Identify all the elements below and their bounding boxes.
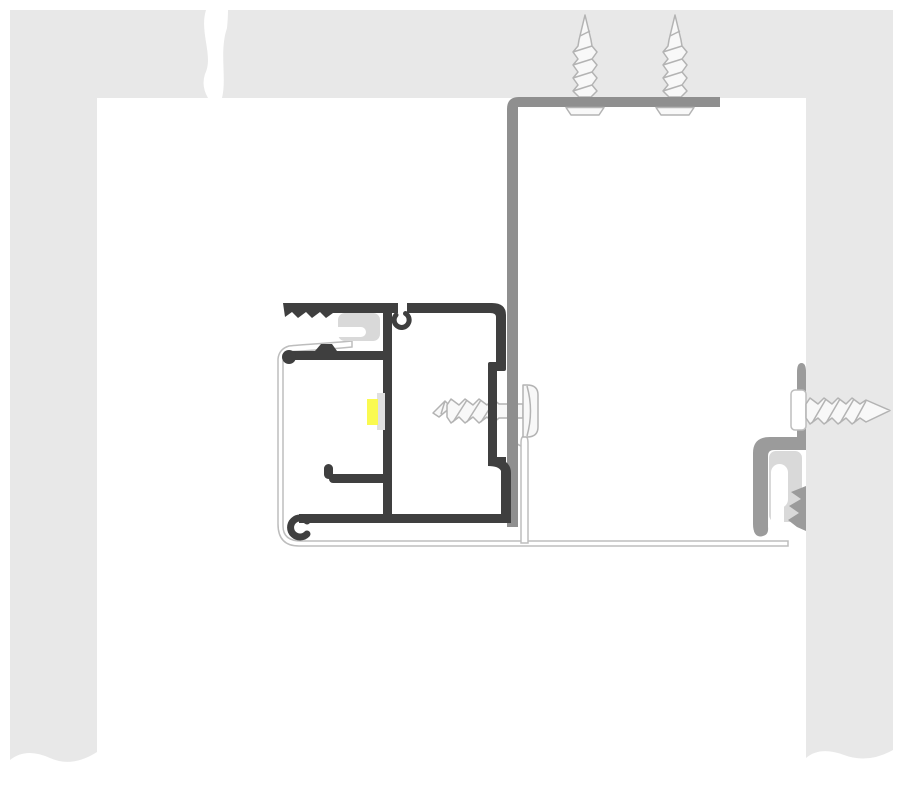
profile-boss-bottom-and-lower-wall	[488, 457, 511, 516]
profile-hook-web	[329, 474, 391, 483]
top-band-left	[97, 10, 208, 98]
center-screw-icon	[433, 385, 538, 437]
profile-top-web-right	[407, 303, 506, 366]
profile-boss-left	[488, 362, 497, 466]
profile-hook-upturn	[324, 464, 333, 479]
right-wall-column	[806, 98, 893, 759]
clip-hook-bulb	[754, 524, 767, 537]
gasket-carve	[328, 327, 366, 337]
top-band-right	[222, 10, 893, 98]
screw-head-left	[566, 108, 604, 116]
top-gasket	[328, 313, 380, 341]
profile-c-hook	[291, 518, 307, 537]
flashing-upstand	[521, 436, 528, 543]
profile-bulb-end	[282, 350, 296, 364]
clip-gasket-carve-lower	[771, 498, 784, 522]
screw-head-right	[656, 108, 694, 116]
led-strip	[367, 399, 378, 425]
profile-bottom-flange	[299, 514, 511, 523]
vertical-screw-heads	[566, 108, 694, 116]
technical-drawing	[0, 0, 906, 786]
wall-structure	[10, 10, 893, 762]
led-diffuser	[377, 393, 385, 430]
left-wall-column	[10, 10, 97, 762]
mounting-bracket	[507, 97, 720, 527]
profile-second-web	[287, 351, 383, 360]
profile-serrated-arm	[283, 303, 333, 318]
profile-screw-port	[394, 314, 409, 328]
diagram-canvas	[0, 0, 906, 786]
right-screw-head-plate	[791, 390, 806, 430]
right-clip-assembly	[753, 363, 806, 537]
